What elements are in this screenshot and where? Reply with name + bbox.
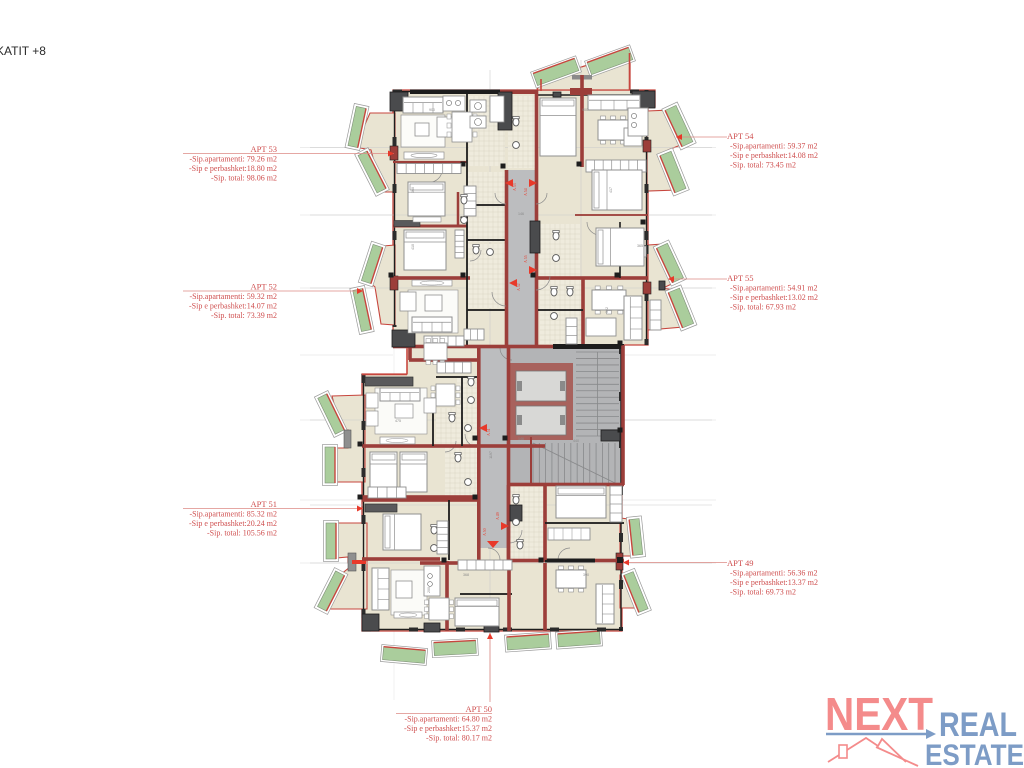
svg-text:A 55: A 55 (523, 255, 528, 263)
svg-text:-Sip.apartamenti: 59.32 m2: -Sip.apartamenti: 59.32 m2 (189, 292, 277, 301)
svg-text:A 51: A 51 (486, 428, 491, 436)
svg-text:322: 322 (605, 307, 609, 313)
svg-text:1197: 1197 (489, 451, 493, 459)
svg-text:APT 52: APT 52 (250, 282, 277, 292)
svg-text:APT 50: APT 50 (465, 704, 492, 714)
svg-text:KATIT +8: KATIT +8 (0, 44, 46, 58)
svg-text:360: 360 (411, 187, 415, 193)
svg-text:-Sip.apartamenti: 79.26 m2: -Sip.apartamenti: 79.26 m2 (189, 155, 277, 164)
svg-text:-Sip. total: 73.45 m2: -Sip. total: 73.45 m2 (730, 161, 796, 170)
svg-text:-Sip. total: 69.73 m2: -Sip. total: 69.73 m2 (730, 588, 796, 597)
svg-text:-Sip e perbashket:18.80 m2: -Sip e perbashket:18.80 m2 (189, 164, 277, 173)
svg-text:APT 54: APT 54 (727, 131, 754, 141)
svg-text:-Sip e perbashket:14.08 m2: -Sip e perbashket:14.08 m2 (730, 151, 818, 160)
svg-text:APT 55: APT 55 (727, 273, 754, 283)
svg-text:ESTATE: ESTATE (925, 739, 1024, 768)
svg-text:-Sip e perbashket:20.24 m2: -Sip e perbashket:20.24 m2 (189, 519, 277, 528)
svg-text:NEXT: NEXT (825, 688, 933, 740)
svg-text:368: 368 (463, 573, 469, 577)
svg-text:200: 200 (427, 587, 431, 593)
svg-text:410: 410 (411, 244, 415, 250)
svg-text:-Sip.apartamenti: 54.91 m2: -Sip.apartamenti: 54.91 m2 (730, 284, 818, 293)
svg-text:-Sip e perbashket:14.07 m2: -Sip e perbashket:14.07 m2 (189, 302, 277, 311)
svg-text:900: 900 (429, 108, 435, 112)
svg-text:A 53: A 53 (512, 183, 517, 191)
svg-text:APT 49: APT 49 (727, 558, 754, 568)
svg-text:146: 146 (518, 437, 524, 441)
svg-text:-Sip. total: 67.93 m2: -Sip. total: 67.93 m2 (730, 303, 796, 312)
svg-text:-Sip e perbashket:15.37 m2: -Sip e perbashket:15.37 m2 (404, 724, 492, 733)
svg-text:146: 146 (518, 212, 524, 216)
svg-text:-Sip e perbashket:13.02 m2: -Sip e perbashket:13.02 m2 (730, 293, 818, 302)
svg-text:A 54: A 54 (523, 188, 528, 196)
svg-text:-Sip.apartamenti: 56.36 m2: -Sip.apartamenti: 56.36 m2 (730, 569, 818, 578)
svg-text:A 52: A 52 (516, 283, 521, 291)
svg-text:-Sip. total: 80.17 m2: -Sip. total: 80.17 m2 (426, 734, 492, 743)
svg-text:-Sip. total: 73.39 m2: -Sip. total: 73.39 m2 (211, 311, 277, 320)
svg-text:A 49: A 49 (495, 512, 500, 520)
svg-text:900: 900 (582, 108, 588, 112)
svg-text:365: 365 (637, 244, 643, 248)
svg-text:APT 53: APT 53 (250, 144, 277, 154)
svg-text:475: 475 (395, 419, 401, 423)
svg-text:-Sip. total: 105.56 m2: -Sip. total: 105.56 m2 (207, 529, 277, 538)
svg-text:-Sip. total: 98.06 m2: -Sip. total: 98.06 m2 (211, 174, 277, 183)
svg-text:-Sip e perbashket:13.37 m2: -Sip e perbashket:13.37 m2 (730, 578, 818, 587)
svg-text:-Sip.apartamenti: 59.37 m2: -Sip.apartamenti: 59.37 m2 (730, 142, 818, 151)
svg-text:APT 51: APT 51 (250, 499, 277, 509)
svg-text:440: 440 (573, 439, 579, 443)
svg-text:417: 417 (609, 187, 613, 193)
svg-text:390: 390 (583, 573, 589, 577)
svg-text:-Sip.apartamenti: 85.32 m2: -Sip.apartamenti: 85.32 m2 (189, 510, 277, 519)
svg-text:A 50: A 50 (482, 528, 487, 536)
svg-text:-Sip.apartamenti: 64.80 m2: -Sip.apartamenti: 64.80 m2 (404, 715, 492, 724)
